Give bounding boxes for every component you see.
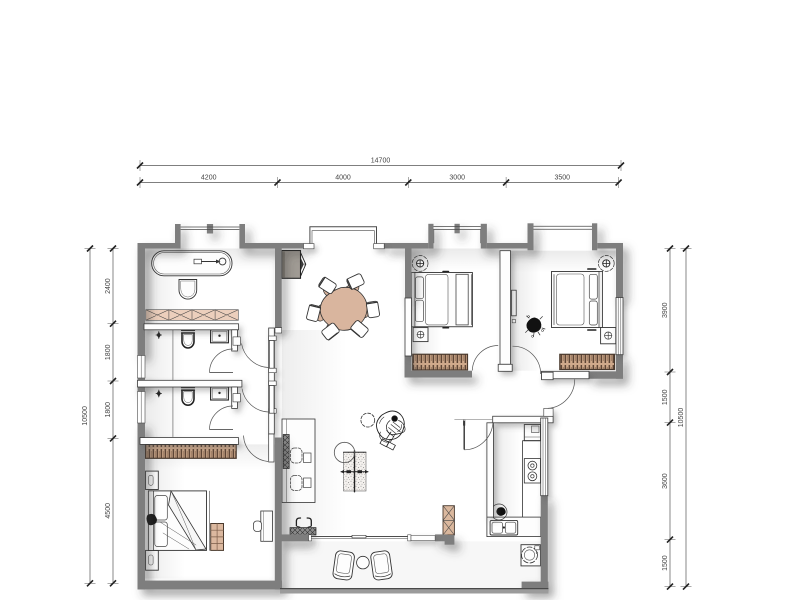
svg-text:4500: 4500 (105, 503, 112, 519)
svg-text:3900: 3900 (662, 302, 669, 318)
svg-text:1800: 1800 (105, 344, 112, 360)
svg-text:3000: 3000 (449, 175, 465, 182)
svg-text:10500: 10500 (82, 406, 89, 426)
svg-text:3600: 3600 (662, 473, 669, 489)
svg-text:1500: 1500 (662, 555, 669, 571)
svg-text:2400: 2400 (105, 278, 112, 294)
svg-text:14700: 14700 (371, 158, 391, 165)
svg-text:3500: 3500 (555, 175, 571, 182)
svg-text:1500: 1500 (662, 389, 669, 405)
svg-text:10500: 10500 (678, 408, 685, 428)
svg-text:4200: 4200 (201, 175, 217, 182)
svg-text:1800: 1800 (105, 402, 112, 418)
svg-text:4000: 4000 (335, 175, 351, 182)
